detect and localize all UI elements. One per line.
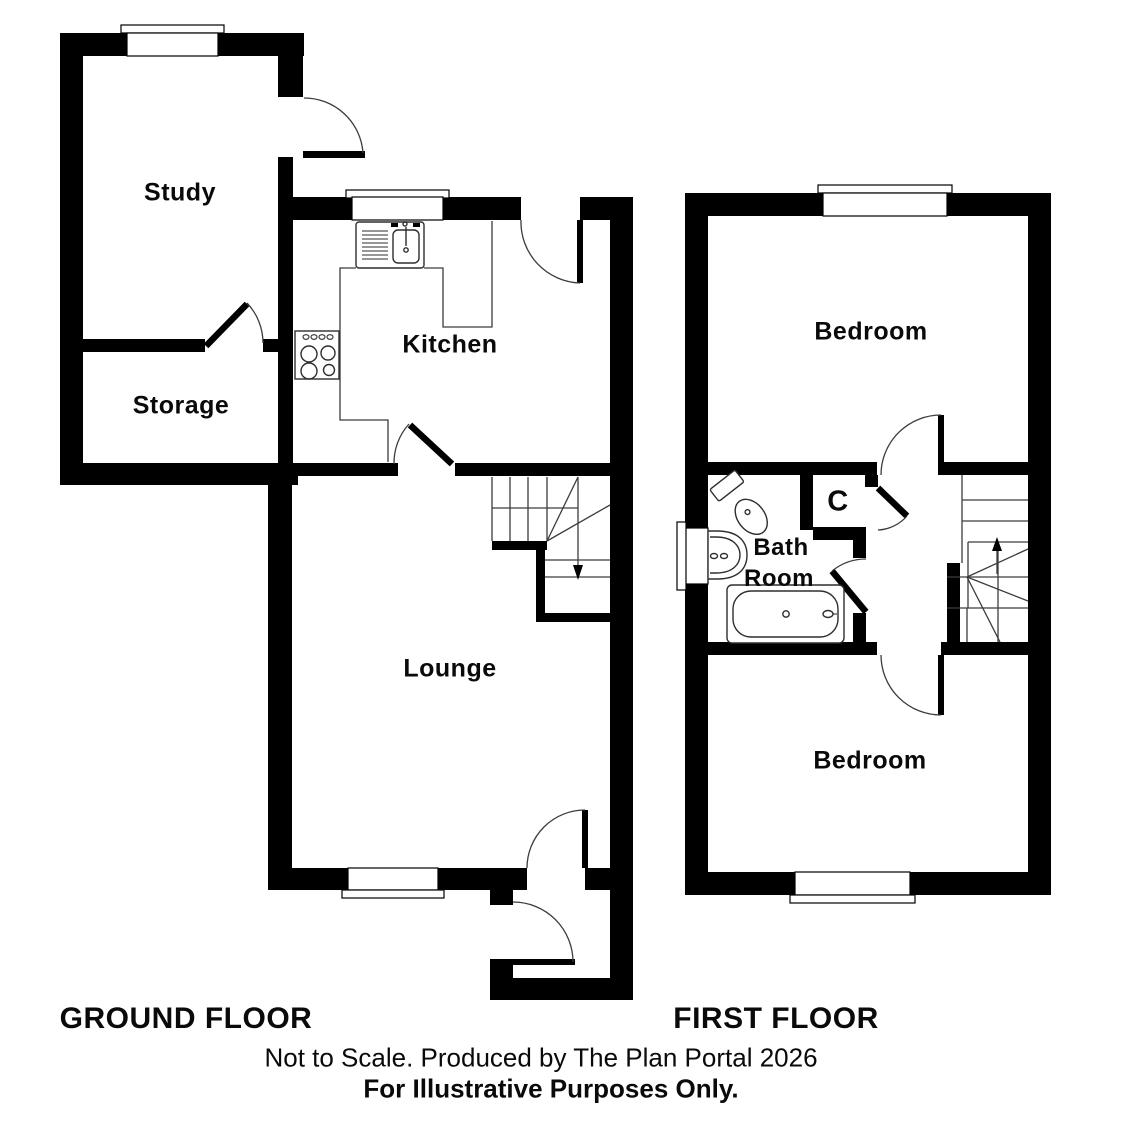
door-swing-arc	[878, 516, 907, 530]
stairs-up-arrow-icon	[992, 537, 1002, 551]
door-swing-arc	[247, 303, 263, 343]
room-label-cupboard: C	[827, 486, 848, 519]
door-leaf	[582, 810, 588, 868]
room-label-lounge: Lounge	[403, 655, 496, 684]
kitchen-lounge-walls	[268, 197, 633, 1000]
lounge-window	[342, 868, 444, 898]
room-label-kitchen: Kitchen	[402, 331, 497, 360]
room-label-study: Study	[144, 179, 216, 208]
wash-basin	[708, 531, 747, 579]
room-label-bathroom-line2: Room	[744, 565, 814, 593]
kitchen-door	[521, 220, 583, 283]
ground-floor-plan	[60, 25, 633, 1000]
ground-floor-title: GROUND FLOOR	[60, 1002, 313, 1036]
bedroom-back-window	[790, 872, 915, 903]
first-floor-title: FIRST FLOOR	[673, 1002, 878, 1036]
room-label-bedroom-back: Bedroom	[813, 747, 926, 776]
bedroom-front-door	[881, 415, 944, 475]
kitchen-hob	[295, 331, 339, 379]
cupboard-door	[878, 488, 907, 530]
door-leaf	[206, 304, 247, 346]
door-leaf	[303, 151, 365, 158]
door-leaf	[938, 415, 944, 475]
bathroom-window	[677, 522, 708, 590]
first-floor-plan	[677, 185, 1051, 903]
lounge-lobby-door	[527, 810, 588, 868]
front-door	[513, 902, 575, 965]
door-swing-arc	[527, 810, 585, 868]
kitchen-sink	[356, 222, 424, 268]
door-swing-arc	[881, 415, 941, 475]
kitchen-window	[346, 190, 449, 220]
study-storage-door	[206, 303, 263, 346]
floorplan-canvas: Study Storage Kitchen Lounge Bedroom Bat…	[0, 0, 1126, 1129]
footer-note: Not to Scale. Produced by The Plan Porta…	[264, 1043, 817, 1074]
door-leaf	[410, 425, 452, 464]
stairs-down-arrow-icon	[573, 565, 583, 580]
door-leaf	[513, 959, 575, 965]
kitchen-lounge-door	[394, 424, 452, 464]
staircase-ground	[492, 477, 610, 622]
bedroom-back-door	[881, 655, 944, 715]
bedroom-front-window	[818, 185, 952, 216]
room-label-bedroom-front: Bedroom	[814, 318, 927, 347]
study-exterior-door	[303, 98, 365, 158]
door-swing-arc	[881, 655, 941, 715]
door-swing-arc	[513, 902, 573, 962]
door-swing-arc	[521, 220, 580, 283]
door-leaf	[577, 220, 583, 283]
footer-disclaimer: For Illustrative Purposes Only.	[363, 1074, 738, 1105]
door-swing-arc	[394, 424, 409, 464]
study-window	[121, 25, 224, 56]
room-label-bathroom-line1: Bath	[753, 534, 808, 562]
door-leaf	[878, 488, 907, 516]
door-swing-arc	[832, 559, 866, 571]
bathtub	[727, 585, 844, 643]
door-swing-arc	[304, 98, 363, 153]
door-leaf	[938, 655, 944, 715]
room-label-storage: Storage	[133, 392, 230, 421]
floorplan-drawing	[0, 0, 1126, 1129]
